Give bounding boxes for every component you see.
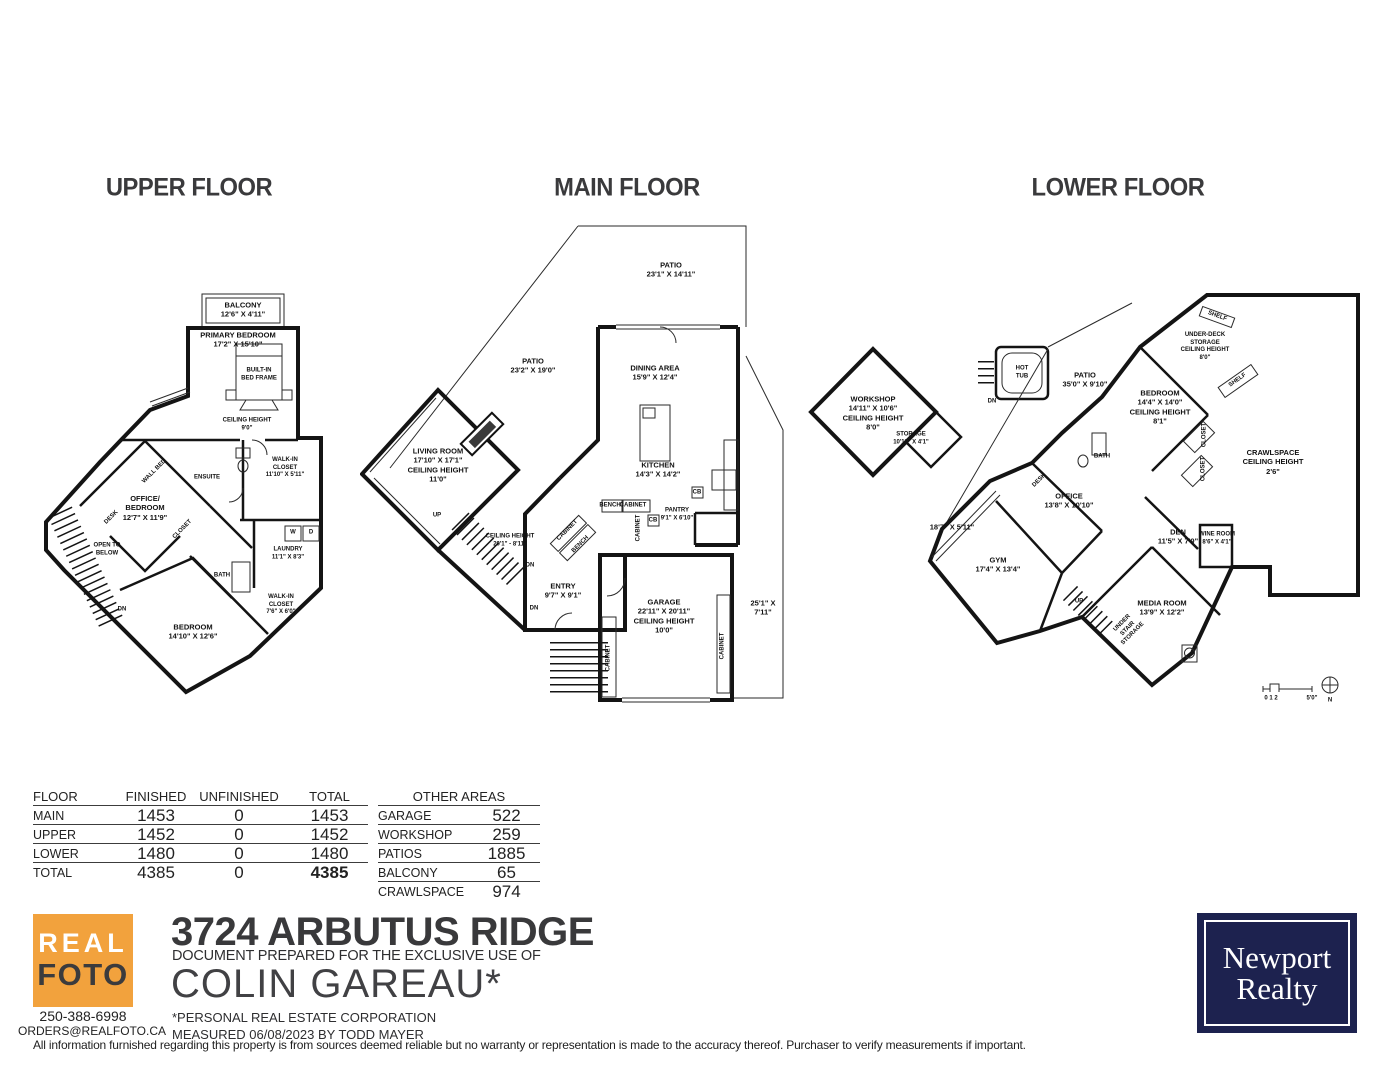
- main-floor-title: MAIN FLOOR: [554, 174, 700, 203]
- label-up-main: UP: [433, 512, 441, 520]
- label-ceiling-height-9: CEILING HEIGHT 9'0": [223, 418, 272, 433]
- room-label-den: DEN 11'5" X 7'9": [1158, 528, 1198, 547]
- row-main-total: 1453: [291, 807, 368, 824]
- row-lower-total: 1480: [291, 845, 368, 862]
- col-finished: FINISHED: [125, 789, 187, 805]
- row-total-label: TOTAL: [33, 866, 125, 881]
- room-label-office-bedroom: OFFICE/ BEDROOM 12'7" X 11'9": [123, 494, 167, 522]
- row-total-unfinished: 0: [187, 864, 291, 881]
- row-total-total: 4385: [291, 864, 368, 881]
- col-total: TOTAL: [291, 789, 368, 805]
- label-hot-tub: HOT TUB: [1016, 366, 1029, 381]
- label-cb-2: CB: [693, 489, 702, 497]
- other-areas-header: OTHER AREAS: [378, 789, 540, 806]
- room-label-garage: GARAGE 22'11" X 20'11" CEILING HEIGHT 10…: [634, 597, 695, 635]
- row-main-finished: 1453: [125, 807, 187, 824]
- newport-realty-logo-inner: Newport Realty: [1204, 920, 1350, 1026]
- realfoto-logo-foto: FOTO: [37, 959, 129, 992]
- label-washer: W: [290, 529, 296, 537]
- label-cb-1: CB: [649, 517, 658, 525]
- row-main-unfinished: 0: [187, 807, 291, 824]
- room-label-wine-room: WINE ROOM 8'6" X 4'1": [1199, 532, 1235, 547]
- room-label-office: OFFICE 13'8" X 10'10": [1044, 492, 1093, 511]
- table-row: CRAWLSPACE 974: [378, 882, 540, 900]
- label-scale-ticks: 0 1 2: [1264, 695, 1277, 703]
- col-floor: FLOOR: [33, 789, 125, 805]
- room-label-patio-1: PATIO 23'1" X 14'11": [647, 261, 696, 280]
- room-label-bedroom-lower: BEDROOM 14'4" X 14'0" CEILING HEIGHT 8'1…: [1130, 388, 1191, 426]
- room-label-bath-lower: BATH: [1094, 453, 1110, 461]
- realfoto-phone: 250-388-6998: [23, 1008, 143, 1024]
- room-label-dining-area: DINING AREA 15'9" X 12'4": [630, 364, 679, 383]
- other-areas-table: OTHER AREAS GARAGE 522 WORKSHOP 259 PATI…: [378, 789, 540, 900]
- label-open-to-below: OPEN TO BELOW: [94, 543, 121, 558]
- upper-floor-plan: BALCONY 12'6" X 4'11" PRIMARY BEDROOM 17…: [40, 288, 325, 703]
- room-label-balcony: BALCONY 12'6" X 4'11": [221, 301, 265, 320]
- newport-realty-logo: Newport Realty: [1197, 913, 1357, 1033]
- table-row: LOWER 1480 0 1480: [33, 844, 368, 863]
- label-ceiling-height-entry: CEILING HEIGHT 20'1" - 8'11": [486, 534, 535, 549]
- room-label-patio-lower: PATIO 35'0" X 9'10": [1063, 371, 1108, 390]
- label-cabinet-1: CABINET: [620, 502, 647, 510]
- realfoto-logo: REAL FOTO: [33, 914, 133, 1007]
- newport-logo-line1: Newport: [1223, 942, 1331, 975]
- client-name: COLIN GAREAU*: [171, 962, 502, 1007]
- room-label-crawlspace: CRAWLSPACE CEILING HEIGHT 2'6": [1243, 448, 1304, 476]
- label-north: N: [1328, 697, 1332, 705]
- row-upper-total: 1452: [291, 826, 368, 843]
- label-bench-1: BENCH: [599, 502, 620, 510]
- row-crawlspace-label: CRAWLSPACE: [378, 885, 473, 900]
- client-note: *PERSONAL REAL ESTATE CORPORATION: [172, 1010, 436, 1025]
- label-dn-lower: DN: [988, 398, 997, 406]
- table-row: BALCONY 65: [378, 863, 540, 882]
- room-label-walkin-closet-2: WALK-IN CLOSET 7'6" X 6'0": [266, 594, 295, 617]
- row-lower-finished: 1480: [125, 845, 187, 862]
- label-dn-1: DN: [526, 562, 535, 570]
- table-row: WORKSHOP 259: [378, 825, 540, 844]
- table-row: GARAGE 522: [378, 806, 540, 825]
- table-row-total: TOTAL 4385 0 4385: [33, 863, 368, 881]
- label-dn-2: DN: [530, 605, 539, 613]
- newport-logo-line2: Realty: [1237, 973, 1318, 1004]
- label-dn-upper: DN: [118, 606, 127, 614]
- room-label-bath-upper: BATH: [214, 572, 230, 580]
- row-lower-unfinished: 0: [187, 845, 291, 862]
- main-floor-plan: PATIO 23'1" X 14'11" PATIO 23'2" X 19'0"…: [360, 218, 800, 710]
- label-closet-1: CLOSET: [1201, 423, 1209, 447]
- label-cabinet-garage-right: CABINET: [719, 633, 727, 660]
- table-row: UPPER 1452 0 1452: [33, 825, 368, 844]
- row-upper-label: UPPER: [33, 828, 125, 843]
- row-garage-value: 522: [473, 807, 540, 824]
- floorplan-document: UPPER FLOOR MAIN FLOOR LOWER FLOOR: [0, 0, 1398, 1080]
- row-garage-label: GARAGE: [378, 809, 473, 824]
- floor-table-header: FLOOR FINISHED UNFINISHED TOTAL: [33, 789, 368, 806]
- label-cabinet-garage-left: CABINET: [605, 645, 613, 672]
- lower-floor-title: LOWER FLOOR: [1032, 174, 1205, 203]
- row-upper-unfinished: 0: [187, 826, 291, 843]
- label-strip-dim: 18'7" X 5'11": [930, 522, 974, 531]
- room-label-kitchen: KITCHEN 14'3" X 14'2": [636, 461, 681, 480]
- label-under-deck-storage: UNDER-DECK STORAGE CEILING HEIGHT 8'0": [1181, 332, 1230, 362]
- realfoto-email: ORDERS@REALFOTO.CA: [18, 1024, 148, 1038]
- label-side-patio-dim: 25'1" X 7'11": [745, 599, 782, 618]
- room-label-entry: ENTRY 9'7" X 9'1": [545, 582, 582, 601]
- room-label-living-room: LIVING ROOM 17'10" X 17'1" CEILING HEIGH…: [408, 446, 469, 484]
- room-label-bedroom-upper: BEDROOM 14'10" X 12'6": [168, 623, 217, 642]
- room-label-primary-bedroom: PRIMARY BEDROOM 17'2" X 15'10": [200, 331, 275, 350]
- label-dryer: D: [309, 529, 313, 537]
- row-balcony-label: BALCONY: [378, 866, 473, 881]
- other-areas-title: OTHER AREAS: [378, 789, 540, 805]
- lower-floor-plan: WORKSHOP 14'11" X 10'6" CEILING HEIGHT 8…: [800, 285, 1370, 715]
- row-workshop-value: 259: [473, 826, 540, 843]
- upper-floor-title: UPPER FLOOR: [106, 174, 272, 203]
- row-workshop-label: WORKSHOP: [378, 828, 473, 843]
- row-upper-finished: 1452: [125, 826, 187, 843]
- col-unfinished: UNFINISHED: [187, 789, 291, 805]
- room-label-storage: STORAGE 10'11" X 4'1": [893, 432, 929, 447]
- row-lower-label: LOWER: [33, 847, 125, 862]
- label-up-lower: UP: [1075, 598, 1083, 606]
- label-closet-2: CLOSET: [1200, 457, 1208, 481]
- room-label-ensuite: ENSUITE: [194, 474, 220, 482]
- room-label-workshop: WORKSHOP 14'11" X 10'6" CEILING HEIGHT 8…: [843, 394, 904, 432]
- disclaimer-text: All information furnished regarding this…: [33, 1038, 1026, 1052]
- room-label-walkin-closet-1: WALK-IN CLOSET 11'10" X 5'11": [266, 457, 305, 480]
- room-label-media-room: MEDIA ROOM 13'9" X 12'2": [1137, 599, 1186, 618]
- room-label-laundry: LAUNDRY 11'1" X 8'3": [272, 547, 304, 562]
- floor-area-table: FLOOR FINISHED UNFINISHED TOTAL MAIN 145…: [33, 789, 368, 881]
- realfoto-logo-real: REAL: [38, 929, 128, 959]
- row-crawlspace-value: 974: [473, 883, 540, 900]
- row-total-finished: 4385: [125, 864, 187, 881]
- room-label-gym: GYM 17'4" X 13'4": [976, 556, 1021, 575]
- row-patios-value: 1885: [473, 845, 540, 862]
- table-row: PATIOS 1885: [378, 844, 540, 863]
- table-row: MAIN 1453 0 1453: [33, 806, 368, 825]
- room-label-pantry: PANTRY 9'1" X 6'10": [661, 508, 694, 523]
- row-balcony-value: 65: [473, 864, 540, 881]
- label-built-in-bed-frame: BUILT-IN BED FRAME: [241, 368, 277, 383]
- row-patios-label: PATIOS: [378, 847, 473, 862]
- label-cabinet-2: CABINET: [635, 515, 643, 542]
- row-main-label: MAIN: [33, 809, 125, 824]
- label-scale-length: 5'0": [1307, 695, 1318, 703]
- room-label-patio-2: PATIO 23'2" X 19'0": [511, 357, 556, 376]
